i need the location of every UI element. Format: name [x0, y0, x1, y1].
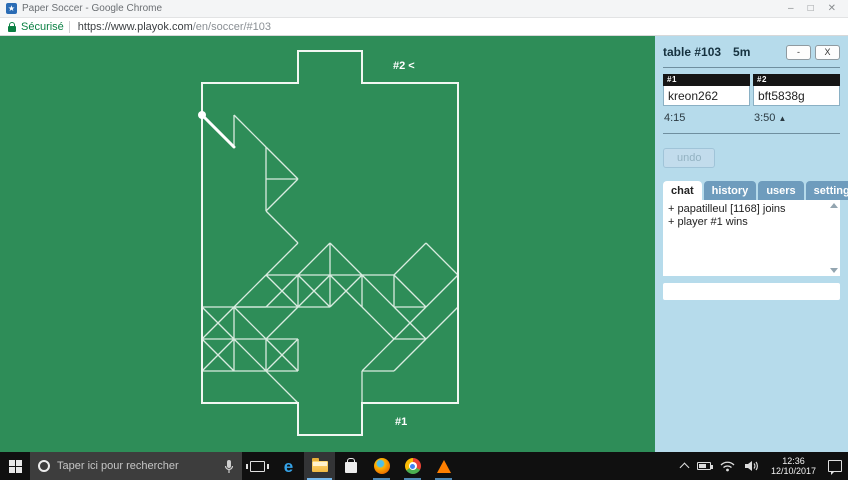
- playok-favicon-icon: ★: [6, 3, 17, 14]
- chat-input[interactable]: [663, 283, 840, 300]
- tab-chat[interactable]: chat: [663, 181, 702, 200]
- player-1-name: kreon262: [663, 86, 750, 106]
- file-explorer-icon: [312, 461, 328, 472]
- move-segment: [234, 275, 266, 307]
- edge-icon: e: [284, 458, 293, 475]
- scroll-up-icon[interactable]: [830, 203, 838, 208]
- table-title: table #103: [663, 45, 721, 59]
- move-segment: [266, 147, 298, 179]
- chat-message: + player #1 wins: [668, 216, 824, 229]
- close-button[interactable]: ✕: [828, 3, 836, 15]
- chat-message-panel: + papatilleul [1168] joins + player #1 w…: [663, 200, 840, 276]
- move-segment: [426, 243, 458, 275]
- move-segment: [266, 243, 298, 275]
- move-segment: [362, 275, 394, 307]
- windows-taskbar: Taper ici pour rechercher e: [0, 452, 848, 480]
- minimize-button[interactable]: –: [788, 3, 794, 15]
- player-1-panel: #1 kreon262 4:15: [663, 74, 750, 124]
- player-2-panel: #2 bft5838g 3:50 ▲: [753, 74, 840, 124]
- tray-expand-icon[interactable]: [680, 463, 690, 473]
- move-segment: [234, 115, 266, 147]
- goal-label: #1: [395, 416, 407, 428]
- chat-scrollbar[interactable]: [828, 202, 838, 274]
- move-segment: [234, 339, 266, 371]
- windows-logo-icon: [9, 460, 22, 473]
- table-minimize-button[interactable]: -: [786, 45, 811, 60]
- padlock-icon: [8, 22, 16, 32]
- restore-button[interactable]: □: [808, 3, 814, 15]
- security-label: Sécurisé: [21, 21, 64, 33]
- move-segment: [426, 275, 458, 307]
- search-placeholder-text: Taper ici pour rechercher: [57, 460, 217, 472]
- url-host: https://www.playok.com: [78, 21, 193, 33]
- table-close-button[interactable]: X: [815, 45, 840, 60]
- tab-users[interactable]: users: [758, 181, 803, 200]
- board-area: #2 <#1: [0, 36, 655, 452]
- goal-label: #2 <: [393, 60, 415, 72]
- taskbar-vlc[interactable]: [428, 452, 459, 480]
- game-sidebar: table #103 5m - X #1 kreon262 4:15: [655, 36, 848, 452]
- chat-message: + papatilleul [1168] joins: [668, 203, 824, 216]
- clock-date: 12/10/2017: [771, 466, 816, 476]
- player-2-turn-marker: ▲: [778, 114, 786, 123]
- tab-history[interactable]: history: [704, 181, 757, 200]
- task-view-icon: [250, 461, 265, 472]
- store-icon: [345, 462, 357, 473]
- cortana-icon: [38, 460, 50, 472]
- move-segment: [394, 275, 426, 307]
- move-segment: [362, 339, 394, 371]
- battery-icon[interactable]: [697, 462, 711, 470]
- move-segment: [234, 307, 266, 339]
- tab-settings[interactable]: settings: [806, 181, 848, 200]
- chrome-window: ★ Paper Soccer - Google Chrome – □ ✕ Séc…: [0, 0, 848, 480]
- divider: [663, 133, 840, 134]
- taskbar-firefox[interactable]: [366, 452, 397, 480]
- move-segment: [266, 179, 298, 211]
- time-control: 5m: [733, 45, 750, 59]
- move-segment: [298, 243, 330, 275]
- start-button[interactable]: [0, 452, 30, 480]
- url-text[interactable]: https://www.playok.com/en/soccer/#103: [69, 21, 271, 33]
- taskbar-chrome[interactable]: [397, 452, 428, 480]
- taskbar-clock[interactable]: 12:36 12/10/2017: [768, 456, 819, 476]
- move-segment: [426, 307, 458, 339]
- wifi-icon[interactable]: [720, 460, 735, 472]
- game-board[interactable]: #2 <#1: [0, 36, 655, 452]
- volume-icon[interactable]: [744, 460, 759, 472]
- window-title: Paper Soccer - Google Chrome: [22, 3, 788, 14]
- player-1-clock: 4:15: [664, 112, 685, 124]
- clock-time: 12:36: [771, 456, 816, 466]
- last-move-segment: [202, 115, 234, 147]
- move-segment: [330, 243, 362, 275]
- move-segment: [394, 243, 426, 275]
- move-segment: [362, 307, 394, 339]
- browser-titlebar: ★ Paper Soccer - Google Chrome – □ ✕: [0, 0, 848, 18]
- player-2-number: #2: [753, 74, 840, 86]
- microphone-icon[interactable]: [224, 459, 234, 474]
- move-segment: [266, 307, 298, 339]
- scroll-down-icon[interactable]: [830, 268, 838, 273]
- firefox-icon: [374, 458, 390, 474]
- task-view-button[interactable]: [242, 452, 273, 480]
- url-path: /en/soccer/#103: [193, 21, 271, 33]
- divider: [663, 67, 840, 68]
- ball: [198, 111, 206, 119]
- player-2-clock: 3:50: [754, 112, 775, 124]
- taskbar-file-explorer[interactable]: [304, 452, 335, 480]
- chrome-icon: [405, 458, 421, 474]
- vlc-icon: [437, 460, 451, 473]
- action-center-icon[interactable]: [828, 460, 842, 472]
- move-segment: [394, 339, 426, 371]
- player-2-name: bft5838g: [753, 86, 840, 106]
- taskbar-edge[interactable]: e: [273, 452, 304, 480]
- taskbar-store[interactable]: [335, 452, 366, 480]
- address-bar[interactable]: Sécurisé https://www.playok.com/en/socce…: [0, 18, 848, 36]
- move-segment: [266, 371, 298, 403]
- move-segment: [266, 211, 298, 243]
- player-1-number: #1: [663, 74, 750, 86]
- undo-button[interactable]: undo: [663, 148, 715, 168]
- taskbar-search[interactable]: Taper ici pour rechercher: [30, 452, 242, 480]
